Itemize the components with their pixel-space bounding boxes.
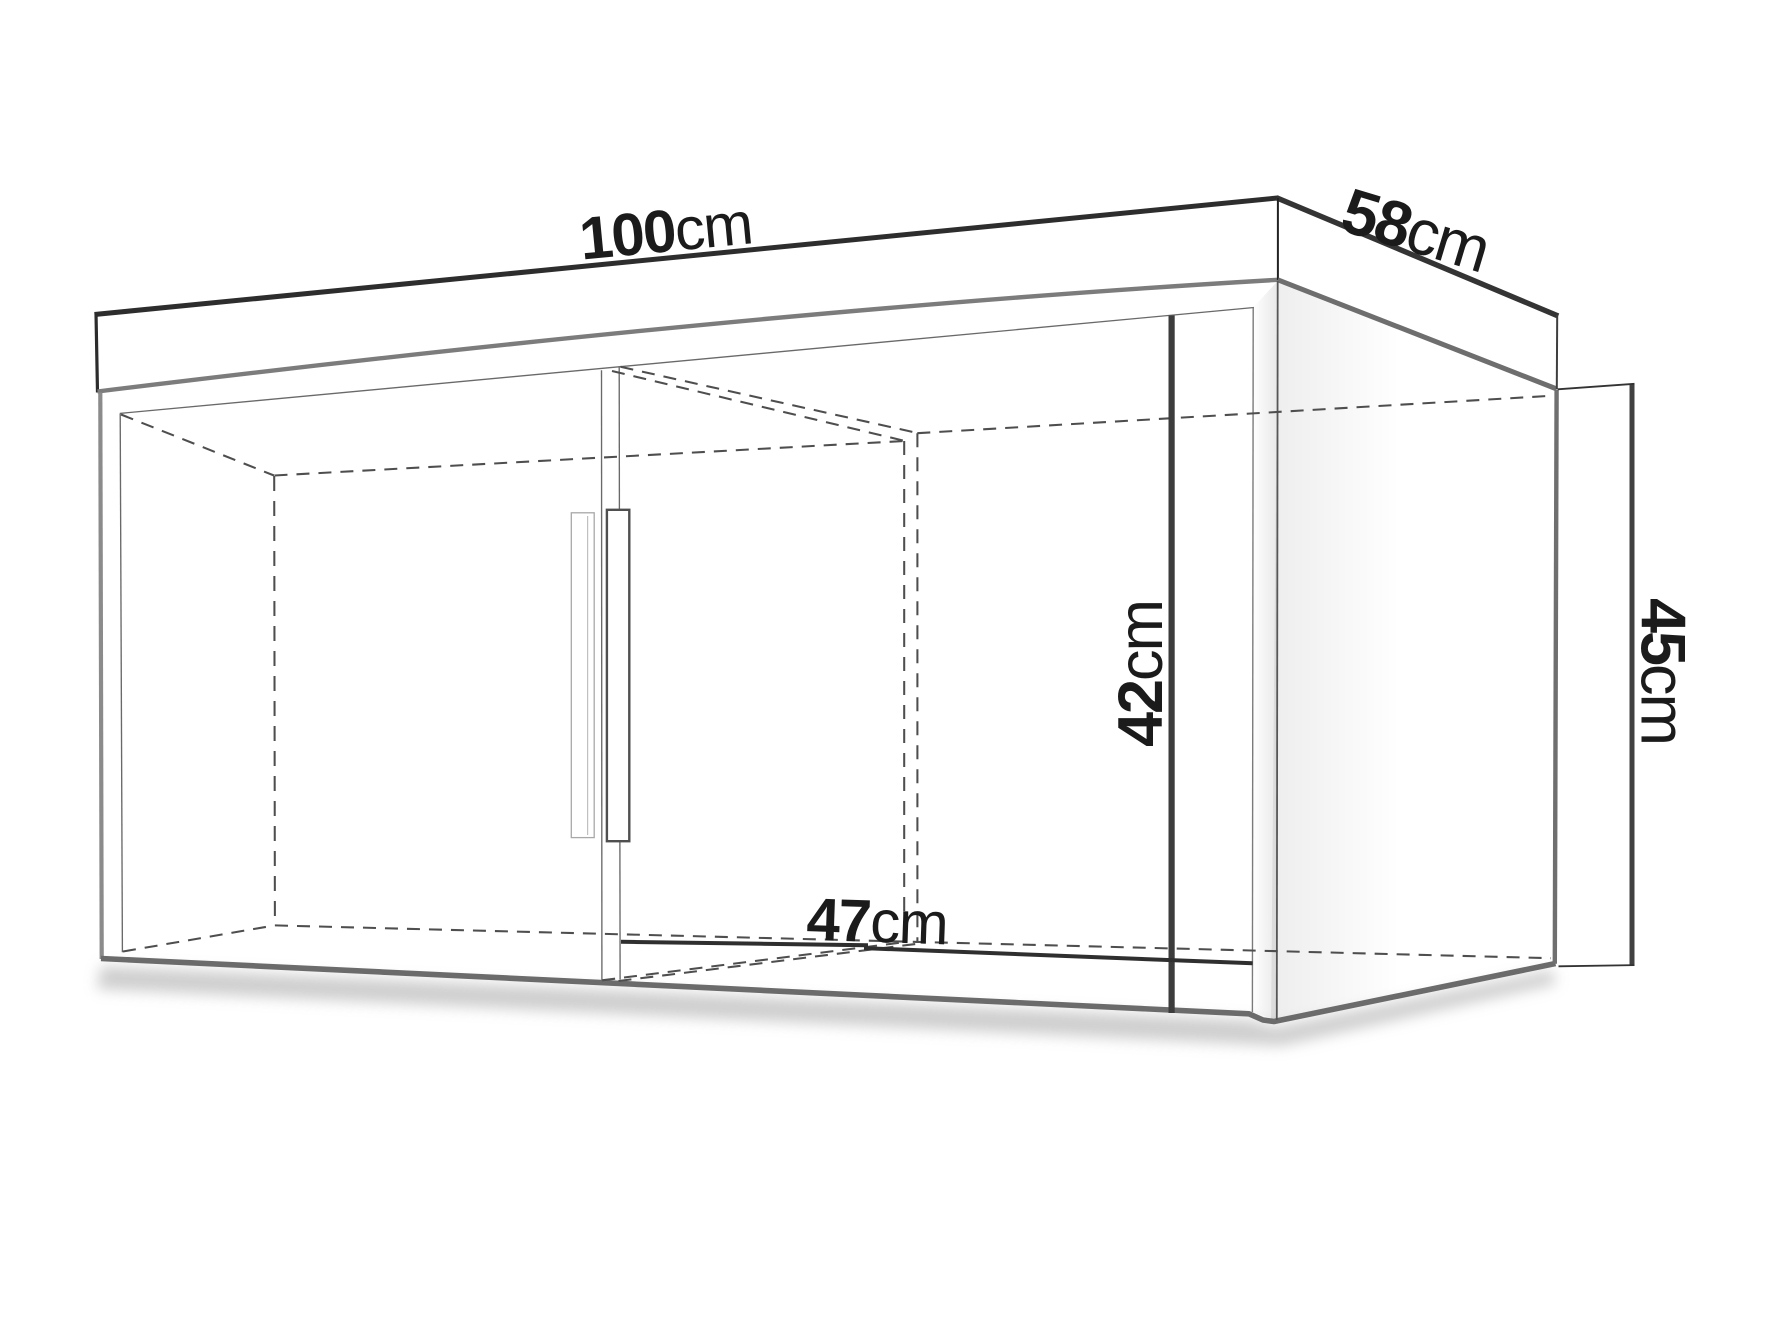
svg-text:45cm: 45cm (1628, 598, 1698, 744)
svg-text:47cm: 47cm (805, 886, 948, 958)
svg-text:42cm: 42cm (1106, 601, 1176, 747)
